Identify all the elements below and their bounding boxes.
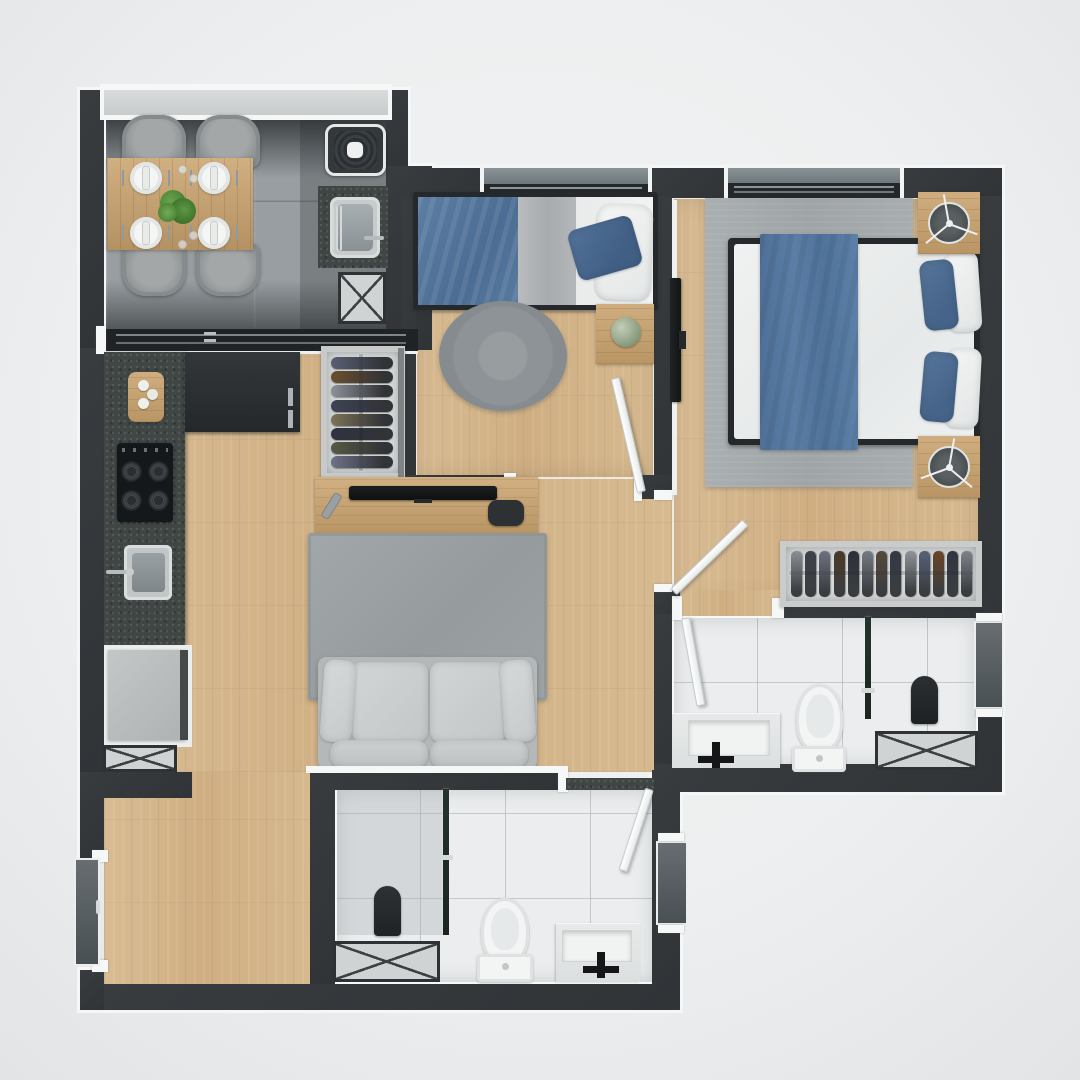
ensuite-faucet-bar [698,756,734,763]
jamb-ensuite-door [672,596,682,620]
fork-3 [122,225,124,241]
master-clothes-bundle [961,551,972,597]
master-clothes-bundle [947,551,958,597]
sliding-door-pane2 [116,342,406,344]
master-clothes-bundle [905,551,916,597]
sliding-door-handle2 [204,339,216,342]
ensuite-toilet-seat [806,694,834,738]
burner-2 [148,461,169,482]
console-decor-object [488,500,524,526]
bedroom2-window-sill [484,168,648,184]
living-clothes-bundle [331,371,393,383]
knife-2 [236,170,238,186]
living-clothes-bundle [331,357,393,369]
laundry-sink-ribs [332,206,342,250]
ensuite-shower-partition [865,617,871,719]
sofa-arm-pillow-left [319,659,357,743]
bathroom2-shower-seat [374,886,401,936]
garlic-1 [138,380,149,391]
ensuite-shower-seat [911,676,938,724]
master-clothes-bundle [791,551,802,597]
bedroom2-round-rug [439,301,567,411]
tv-living [349,486,497,500]
knife-1 [168,170,170,186]
garlic-2 [147,389,158,400]
lamp-top [928,202,970,244]
living-clothes-bundle [331,385,393,397]
bedroom2-decor-sphere [611,317,641,347]
plant-centerpiece-c [158,203,177,222]
laundry-faucet [364,236,384,240]
bedroom2-blanket-blue [418,197,518,305]
cutting-board [128,372,164,422]
sofa-arm-pillow-right [499,659,537,743]
wall-left-mid [80,348,104,772]
living-clothes-bundle [331,400,393,412]
floor-plan [0,0,1080,1080]
fork-1 [122,170,124,186]
bathroom2-window-cap-bottom [658,925,684,933]
glass-1 [178,165,187,174]
hall-doorway-floor [672,590,782,618]
living-clothes-bundle [331,414,393,426]
master-clothes-bundle [819,551,830,597]
wall-between-windows [648,168,728,198]
glass-4 [189,231,198,240]
master-clothes-bundle [862,551,873,597]
bathroom2-window-cap-top [658,833,684,841]
lamp-bottom [928,446,970,488]
burner-3 [121,490,142,511]
bathroom2-faucet-bar [583,966,619,973]
master-clothes-bundle [890,551,901,597]
bathroom2-vent-window [656,841,688,925]
knife-3 [168,225,170,241]
jamb-master-door-bottom [654,584,672,592]
ensuite-sink [688,720,770,756]
kitchen-faucet-head [126,568,134,576]
master-pillow-blue-1 [918,258,959,331]
burner-4 [148,490,169,511]
entry-door-handle [96,900,100,914]
wall-dining-left [80,90,104,348]
master-clothes-bundle [919,551,930,597]
napkin-3 [142,221,150,245]
master-tv-bracket [679,331,686,349]
refrigerator-edge [180,650,188,740]
sofa-back-cushion-left [352,662,428,742]
sofa-seat-cushion-left [330,740,428,768]
bathroom2-toilet-seat [491,908,519,950]
master-clothes-bundle [933,551,944,597]
wall-bathroom2-left [310,770,335,986]
sliding-door-pane1 [116,334,406,336]
refrigerator [108,650,186,740]
ensuite-shaft [875,731,978,770]
master-clothes-bundle [805,551,816,597]
bathroom2-toilet-button [502,963,509,970]
cooktop [117,443,173,522]
cabinet-handle-2 [288,410,293,428]
bathroom2-threshold [566,778,654,790]
bedroom2-blanket-gray-fold [518,197,576,305]
sliding-door-handle [204,332,216,335]
chair-bottom-right [196,243,260,296]
wall-entry-left-lower [80,970,104,1010]
kitchen-sink-basin [132,553,165,592]
wall-bottom-main [80,984,680,1010]
lamp-bottom-center [946,464,953,471]
bathroom2-shaft [333,941,440,982]
living-clothes-bundle [331,442,393,454]
bathroom2-shower-partition [443,789,449,935]
entry-floor [104,772,320,986]
living-clothes-bundle [331,428,393,440]
sofa-back-cushion-right [430,662,506,742]
ensuite-faucet-stem [712,742,720,768]
kitchen-shaft [103,745,177,772]
master-clothes-bundle [834,551,845,597]
living-wardrobe-interior [327,352,399,473]
ensuite-window-cap-bottom [976,709,1002,717]
washing-machine-door [347,142,363,158]
master-clothes-bundle [876,551,887,597]
tv-living-stand [414,499,432,503]
jamb-sliding-left [96,326,106,354]
master-window-sill [728,168,900,183]
knife-4 [236,225,238,241]
master-blue-runner [760,234,858,450]
kitchen-tall-cabinet [185,352,300,432]
napkin-1 [142,166,150,190]
bathroom2-faucet-stem [597,952,605,978]
napkin-2 [210,166,218,190]
ensuite-window-cap-top [976,613,1002,621]
bathroom2-partition-handle [439,855,453,860]
ensuite-partition-handle [861,688,875,693]
master-window-pane2 [734,191,894,193]
glass-3 [178,240,187,249]
cabinet-handle-1 [288,388,293,406]
garlic-3 [138,398,149,409]
chair-bottom-left [122,243,186,296]
dining-shaft [338,272,386,324]
ensuite-toilet-button [816,755,823,762]
glass-2 [189,174,198,183]
wall-bathroom2-top [310,770,566,790]
wall-kitchen-stub [80,772,192,798]
ensuite-vent-window [974,621,1004,709]
master-pillow-blue-2 [919,351,959,424]
living-wardrobe-shadow-edge [398,348,404,477]
burner-1 [121,461,142,482]
cooktop-knobs [122,448,168,452]
lamp-top-center [946,220,953,227]
master-window-pane1 [734,186,894,188]
master-clothes-bundle [848,551,859,597]
napkin-4 [210,221,218,245]
sofa-seat-cushion-right [430,740,528,768]
living-clothes-bundle [331,456,393,468]
baseboard-sofa-wall [306,766,568,773]
jamb-master-door-top [654,490,672,500]
balcony-window-sill [104,90,388,115]
laundry-sink-basin [337,204,373,251]
bedroom2-window-pane1 [490,187,642,189]
